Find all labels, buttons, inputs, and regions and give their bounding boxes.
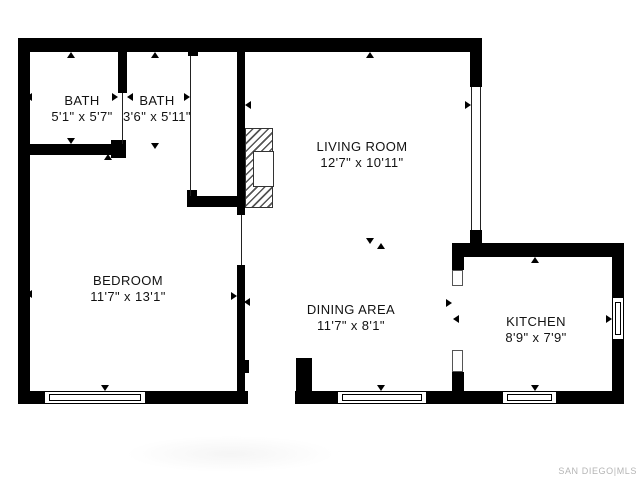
window-pane: [342, 394, 422, 401]
dimension-arrow-icon: [606, 315, 612, 323]
wall-segment: [18, 38, 482, 52]
room-name: BATH: [123, 93, 191, 109]
window-pane: [507, 394, 552, 401]
dimension-arrow-icon: [67, 52, 75, 58]
dimension-arrow-icon: [465, 101, 471, 109]
dimension-arrow-icon: [184, 93, 190, 101]
opening-line: [480, 87, 481, 230]
wall-segment: [470, 38, 482, 87]
room-dimensions: 3'6" x 5'11": [123, 109, 191, 125]
wall-segment: [118, 52, 127, 93]
dimension-arrow-icon: [446, 299, 452, 307]
wall-segment: [453, 243, 624, 257]
watermark-shadow: [128, 436, 333, 472]
dimension-arrow-icon: [531, 385, 539, 391]
wall-segment: [296, 358, 312, 404]
room-dimensions: 12'7" x 10'11": [316, 155, 407, 171]
dimension-arrow-icon: [453, 315, 459, 323]
dimension-arrow-icon: [231, 292, 237, 300]
wall-segment: [452, 243, 464, 270]
dimension-arrow-icon: [244, 298, 250, 306]
watermark-logo: SAN DIEGO|MLS: [558, 466, 637, 476]
dimension-arrow-icon: [112, 93, 118, 101]
window-pane: [615, 302, 621, 335]
room-name: BATH: [51, 93, 112, 109]
wall-segment: [237, 52, 245, 215]
opening-line: [471, 87, 472, 230]
dimension-arrow-icon: [26, 290, 32, 298]
dimension-arrow-icon: [366, 52, 374, 58]
room-name: KITCHEN: [505, 314, 566, 330]
window: [337, 391, 427, 404]
window-pane: [49, 394, 141, 401]
room-dimensions: 11'7" x 13'1": [90, 289, 166, 305]
room-name: LIVING ROOM: [316, 139, 407, 155]
opening-line: [190, 56, 191, 196]
wall-segment: [237, 265, 245, 404]
room-dimensions: 5'1" x 5'7": [51, 109, 112, 125]
dimension-arrow-icon: [151, 52, 159, 58]
dimension-arrow-icon: [377, 243, 385, 249]
window: [502, 391, 557, 404]
room-name: DINING AREA: [307, 302, 395, 318]
window: [44, 391, 146, 404]
room-label-bedroom: BEDROOM 11'7" x 13'1": [90, 273, 166, 305]
room-name: BEDROOM: [90, 273, 166, 289]
wall-segment: [18, 144, 113, 155]
dimension-arrow-icon: [26, 93, 32, 101]
dimension-arrow-icon: [151, 143, 159, 149]
dimension-arrow-icon: [377, 385, 385, 391]
room-label-dining-area: DINING AREA 11'7" x 8'1": [307, 302, 395, 334]
wall-segment: [452, 372, 464, 404]
dimension-arrow-icon: [127, 93, 133, 101]
dimension-arrow-icon: [531, 257, 539, 263]
room-dimensions: 8'9" x 7'9": [505, 330, 566, 346]
opening-line: [241, 215, 242, 265]
room-label-kitchen: KITCHEN 8'9" x 7'9": [505, 314, 566, 346]
dimension-arrow-icon: [366, 238, 374, 244]
room-label-living-room: LIVING ROOM 12'7" x 10'11": [316, 139, 407, 171]
door-casing: [452, 350, 463, 372]
room-label-bath-2: BATH 3'6" x 5'11": [123, 93, 191, 125]
window: [612, 297, 624, 340]
dimension-arrow-icon: [101, 385, 109, 391]
door-casing: [452, 270, 463, 286]
fireplace: [245, 128, 273, 208]
wall-segment: [187, 190, 197, 207]
dimension-arrow-icon: [104, 154, 112, 160]
floor-plan: BATH 5'1" x 5'7" BATH 3'6" x 5'11" LIVIN…: [0, 0, 640, 480]
dimension-arrow-icon: [245, 101, 251, 109]
room-dimensions: 11'7" x 8'1": [307, 318, 395, 334]
fireplace-firebox: [253, 151, 274, 187]
room-label-bath-1: BATH 5'1" x 5'7": [51, 93, 112, 125]
dimension-arrow-icon: [67, 138, 75, 144]
wall-segment: [111, 140, 126, 158]
